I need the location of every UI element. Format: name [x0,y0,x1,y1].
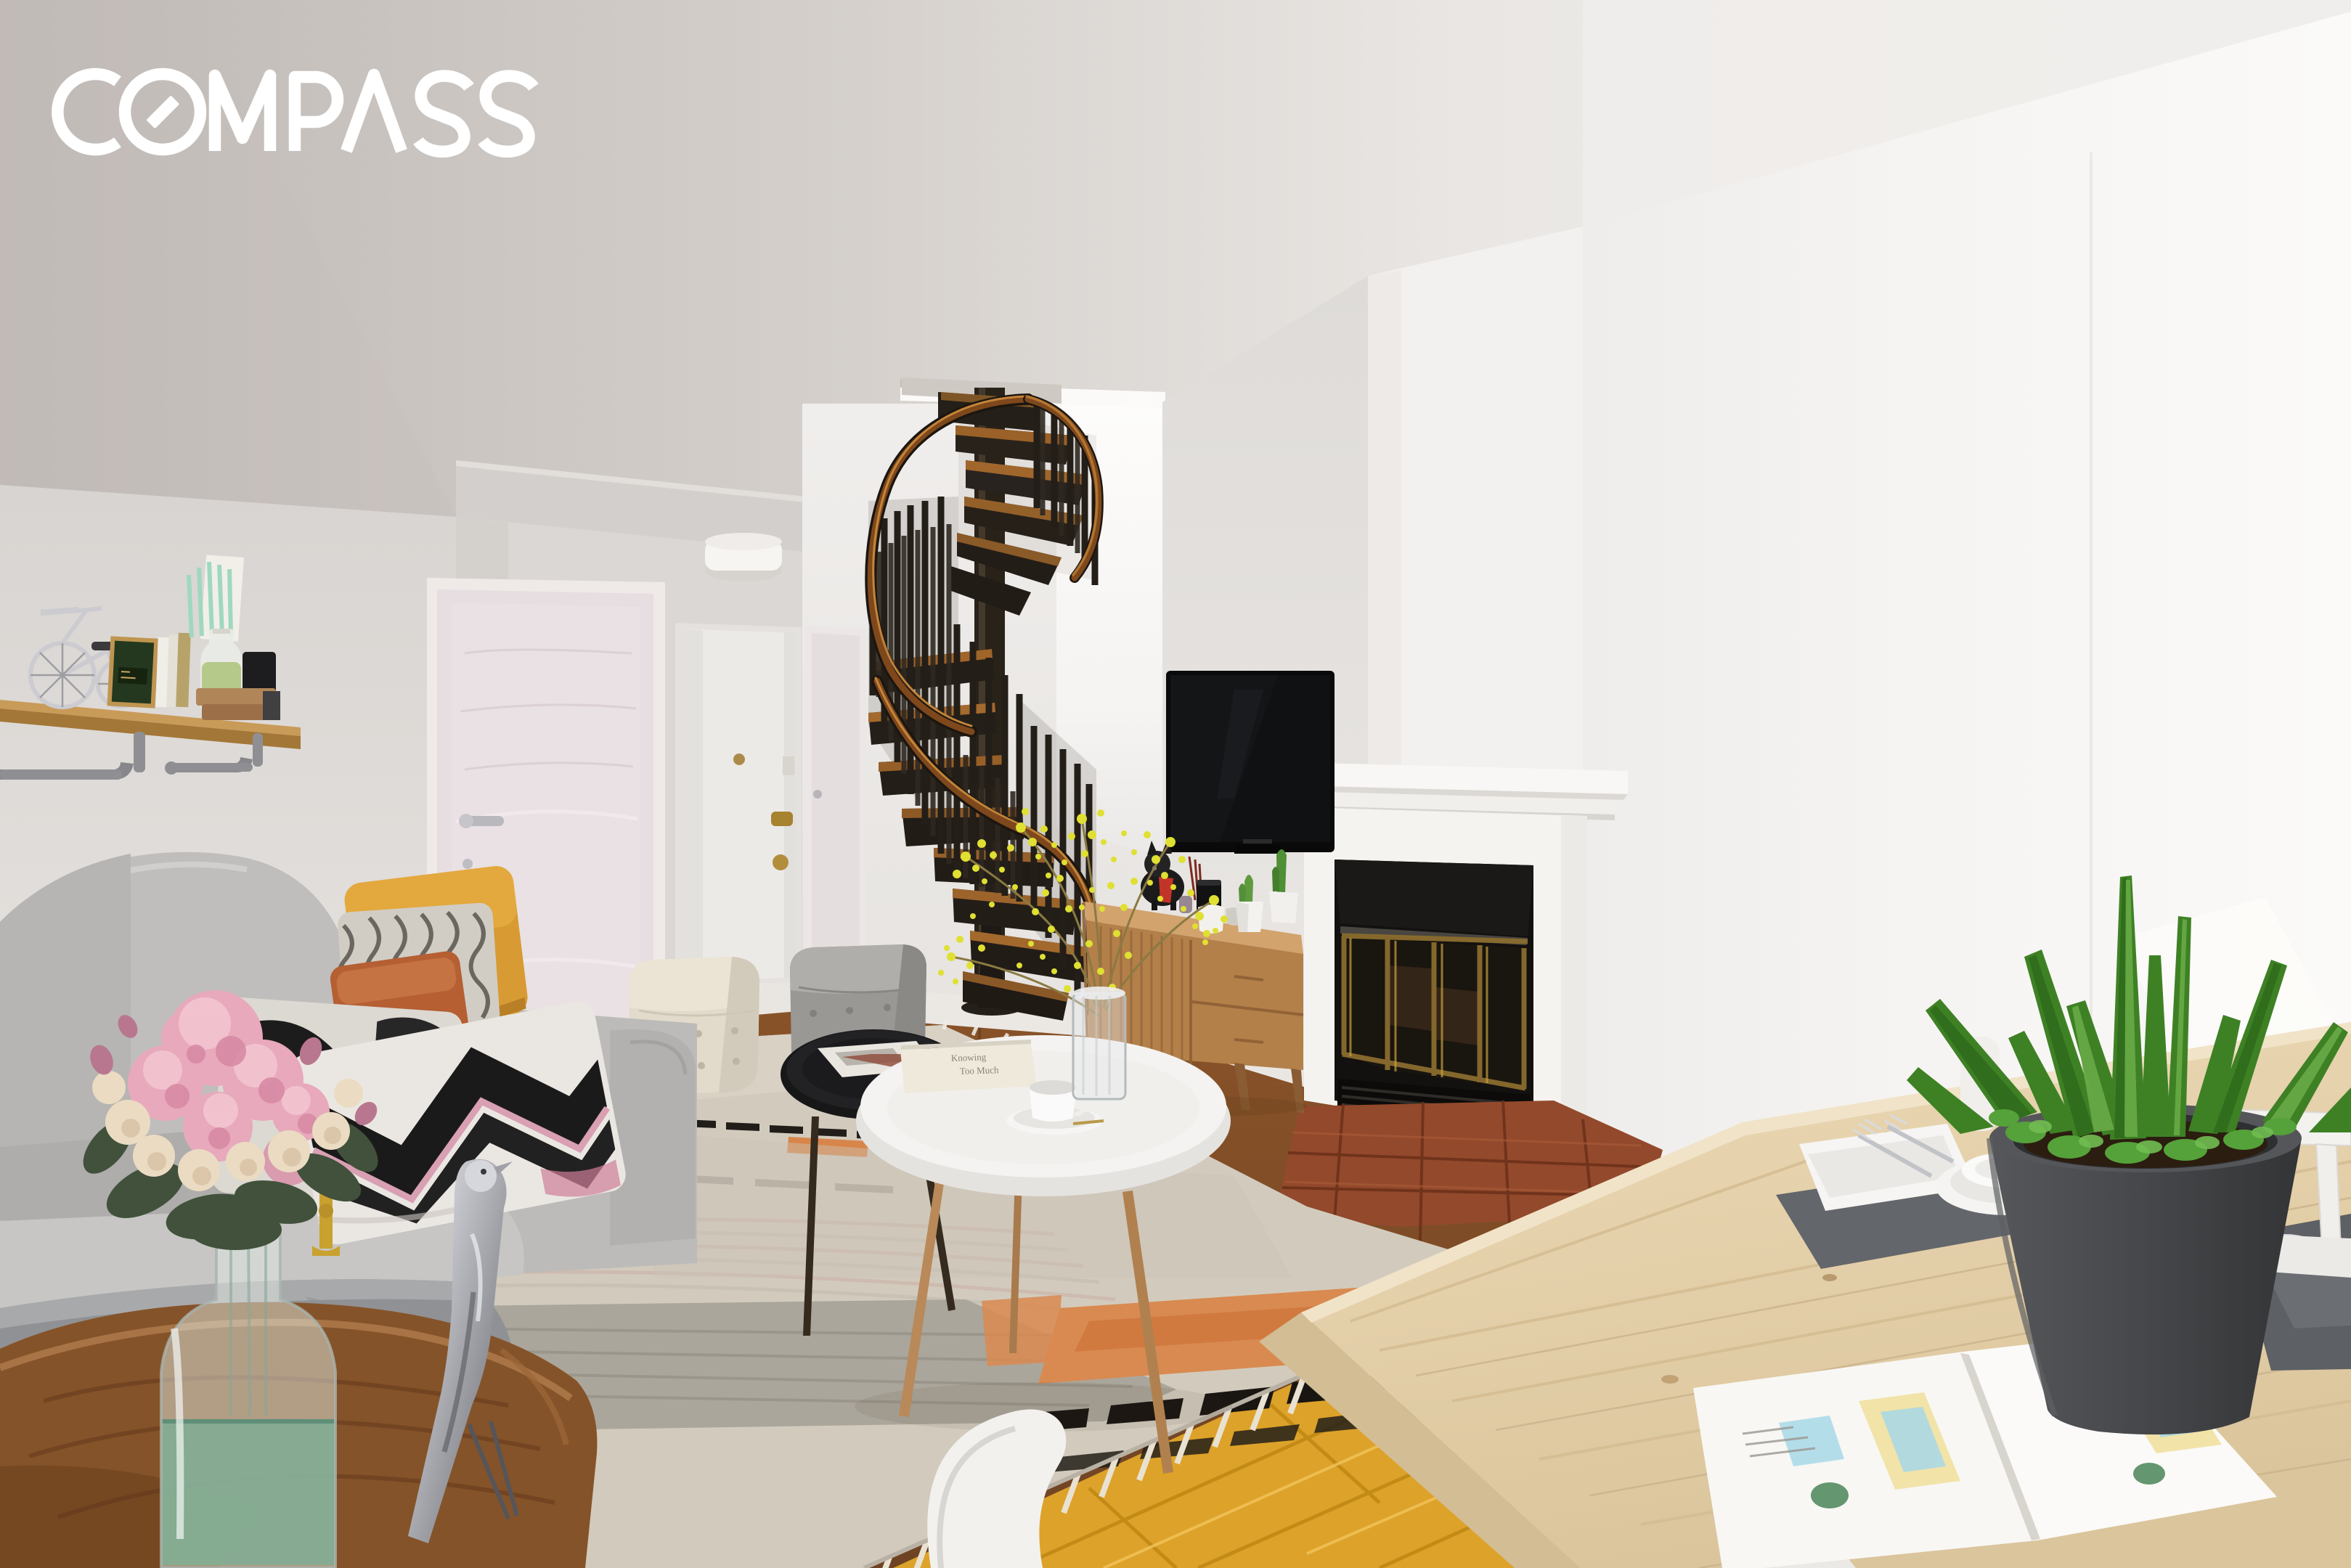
svg-text:Knowing: Knowing [951,1051,987,1063]
svg-text:Too Much: Too Much [960,1064,1000,1077]
